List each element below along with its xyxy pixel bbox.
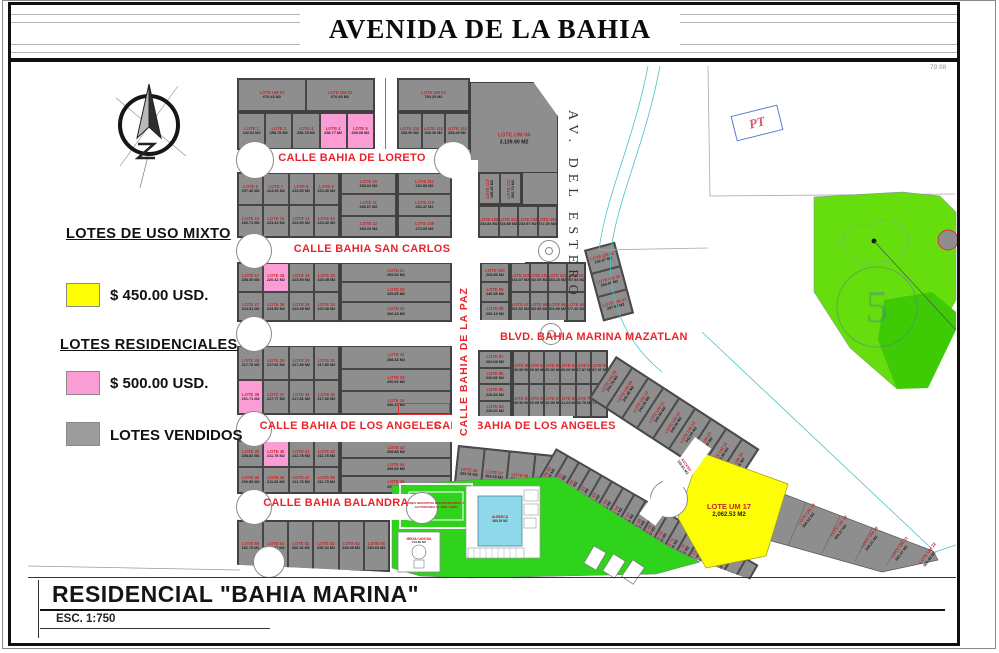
plan-sheet: AVENIDA DE LA BAHIA LOTE UM 01670.43 M2L… [0,0,999,653]
inner-frame [8,2,960,646]
